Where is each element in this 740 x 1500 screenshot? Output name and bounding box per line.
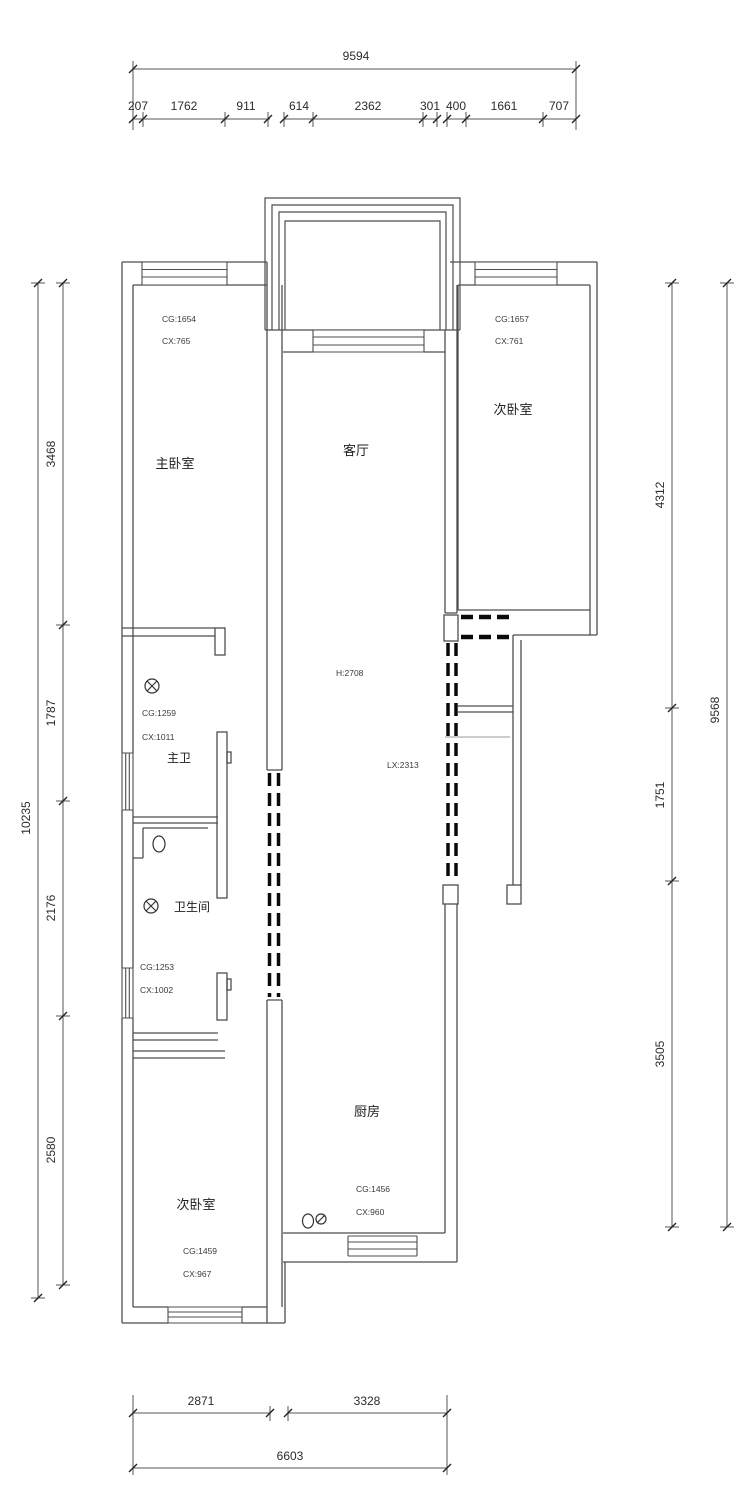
- label-master-bedroom: 主卧室: [155, 456, 194, 471]
- note-kitchen-cx: CX:960: [356, 1207, 385, 1217]
- floor-plan-drawing: 9594 207 1762 911 614 2362 301 400 1661 …: [0, 0, 740, 1500]
- wall-right-living: [445, 285, 457, 613]
- balcony-rect-3: [279, 212, 446, 330]
- pier-bath-1: [217, 732, 227, 898]
- note-bedroom-tr-cg: CG:1657: [495, 314, 529, 324]
- kitchen-pipe-icon: [303, 1214, 314, 1228]
- window-bedroom-tr-top: [475, 262, 557, 285]
- dim-bottom-total: 6603: [277, 1449, 304, 1463]
- wall-duct-lines: [458, 706, 513, 712]
- note-bathroom-cg: CG:1253: [140, 962, 174, 972]
- dim-left-seg-1: 1787: [44, 699, 58, 726]
- dim-left-seg-3: 2580: [44, 1136, 58, 1163]
- dim-left-total: 10235: [19, 801, 33, 835]
- wall-masterbath-bottom: [133, 817, 218, 823]
- dim-top-seg-1: 1762: [171, 99, 198, 113]
- balcony-bay-window: [265, 198, 460, 330]
- label-bedroom-top-right: 次卧室: [493, 402, 532, 417]
- label-living-room: 客厅: [343, 443, 369, 458]
- wall-masterbed-bottom: [122, 628, 215, 636]
- label-bathroom: 卫生间: [174, 900, 210, 914]
- balcony-rect-1: [265, 198, 460, 330]
- note-living-lx: LX:2313: [387, 760, 419, 770]
- window-bedroom-bl-bottom: [168, 1306, 242, 1324]
- note-master-bedroom-cg: CG:1654: [162, 314, 196, 324]
- wall-left-shared: [267, 262, 282, 1323]
- dashed-wall-right-vertical: [448, 643, 456, 883]
- note-living-height: H:2708: [336, 668, 364, 678]
- dashed-wall-left-vertical: [270, 773, 279, 997]
- dim-top-seg-6: 400: [446, 99, 466, 113]
- note-bedroom-bl-cg: CG:1459: [183, 1246, 217, 1256]
- window-kitchen-bottom: [348, 1234, 417, 1257]
- note-master-bedroom-cx: CX:765: [162, 336, 191, 346]
- balcony-rect-4: [285, 221, 440, 330]
- dim-right-chain-line: [665, 283, 679, 1227]
- dim-top-seg-0: 207: [128, 99, 148, 113]
- dim-top-seg-3: 614: [289, 99, 309, 113]
- pier-masterbed-door: [215, 628, 225, 655]
- dim-left-seg-2: 2176: [44, 894, 58, 921]
- dim-top-seg-8: 707: [549, 99, 569, 113]
- label-bedroom-bottom-left: 次卧室: [176, 1197, 215, 1212]
- wall-cap-top-right: [444, 615, 458, 641]
- wall-bedroom-bl-top: [133, 1051, 225, 1058]
- wall-foot-left: [443, 885, 458, 904]
- exterior-walls: [122, 262, 597, 1323]
- walls: [122, 262, 597, 1323]
- dim-bottom-seg-1: 3328: [354, 1394, 381, 1408]
- label-kitchen: 厨房: [354, 1104, 380, 1119]
- kitchen-gas-meter-icon: [316, 1214, 326, 1224]
- note-kitchen-cg: CG:1456: [356, 1184, 390, 1194]
- wall-foot-right: [507, 885, 521, 904]
- note-master-bath-cx: CX:1011: [142, 732, 175, 742]
- dim-top-seg-5: 301: [420, 99, 440, 113]
- dim-right-total: 9568: [708, 696, 722, 723]
- dim-top-overall-line: [133, 61, 576, 130]
- note-bathroom-cx: CX:1002: [140, 985, 173, 995]
- floor-drain-masterbath-icon: [145, 679, 159, 693]
- bathroom-door-knob-icon: [153, 836, 165, 852]
- windows: [121, 262, 557, 1324]
- floor-drain-bathroom-icon: [144, 899, 158, 913]
- dim-right-seg-0: 4312: [653, 481, 667, 508]
- label-master-bath: 主卫: [167, 751, 191, 765]
- note-master-bath-cg: CG:1259: [142, 708, 176, 718]
- dim-left-overall-line: [31, 283, 45, 1298]
- window-living-balcony: [313, 330, 424, 352]
- window-bathroom-left: [121, 968, 134, 1018]
- balcony-rect-2: [272, 205, 453, 330]
- dim-top-seg-2: 911: [236, 99, 255, 113]
- dimension-lines: [31, 61, 734, 1475]
- dim-right-seg-1: 1751: [653, 781, 667, 808]
- note-bedroom-bl-cx: CX:967: [183, 1269, 212, 1279]
- dim-bottom-seg-0: 2871: [188, 1394, 215, 1408]
- dim-left-chain-line: [56, 283, 70, 1285]
- window-masterbath-left: [121, 753, 134, 810]
- dim-top-total: 9594: [343, 49, 370, 63]
- window-masterbed-top: [142, 262, 227, 285]
- dim-top-seg-7: 1661: [491, 99, 518, 113]
- dim-top-seg-4: 2362: [355, 99, 382, 113]
- wall-bathroom-top: [133, 828, 208, 858]
- note-bedroom-tr-cx: CX:761: [495, 336, 524, 346]
- pier-bath-2-bump: [227, 979, 231, 990]
- dim-right-seg-2: 3505: [653, 1040, 667, 1067]
- dim-right-overall-line: [720, 283, 734, 1227]
- pier-bath-1-bump: [227, 752, 231, 763]
- dashed-walls: [270, 617, 514, 997]
- wall-bathroom-bottom: [133, 1033, 218, 1040]
- room-labels: 主卧室 CG:1654 CX:765 客厅 H:2708 LX:2313 次卧室…: [140, 314, 533, 1279]
- floor-plan-sheet: 9594 207 1762 911 614 2362 301 400 1661 …: [0, 0, 740, 1500]
- dim-bottom-chain-lines: [133, 1395, 447, 1475]
- dashed-wall-top-horizontal: [461, 617, 513, 637]
- pier-bath-2: [217, 973, 227, 1020]
- dim-left-seg-0: 3468: [44, 440, 58, 467]
